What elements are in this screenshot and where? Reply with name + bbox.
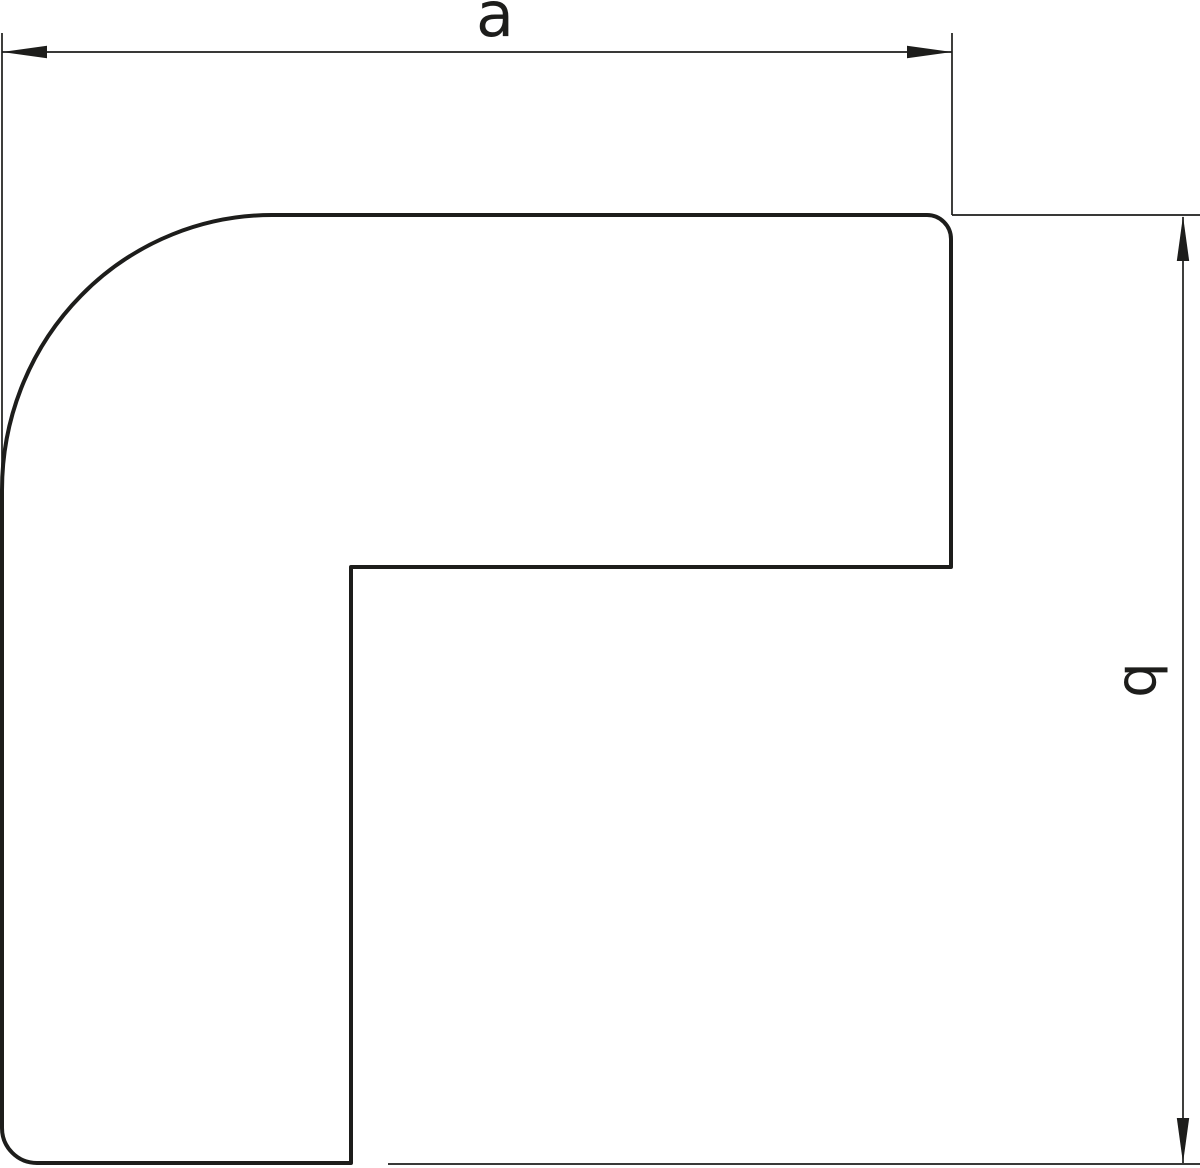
dim-b-arrowhead-top (1177, 216, 1189, 261)
profile-dimension-drawing: a b (0, 0, 1200, 1168)
dim-b-label: b (1111, 662, 1176, 698)
dim-b-arrowhead-bottom (1177, 1118, 1189, 1163)
dim-a-label: a (476, 0, 514, 51)
flat-elbow-profile-outline (2, 215, 951, 1163)
dim-a-arrowhead-right (907, 46, 952, 58)
technical-drawing-page: a b (0, 0, 1200, 1168)
dim-a-arrowhead-left (2, 46, 47, 58)
